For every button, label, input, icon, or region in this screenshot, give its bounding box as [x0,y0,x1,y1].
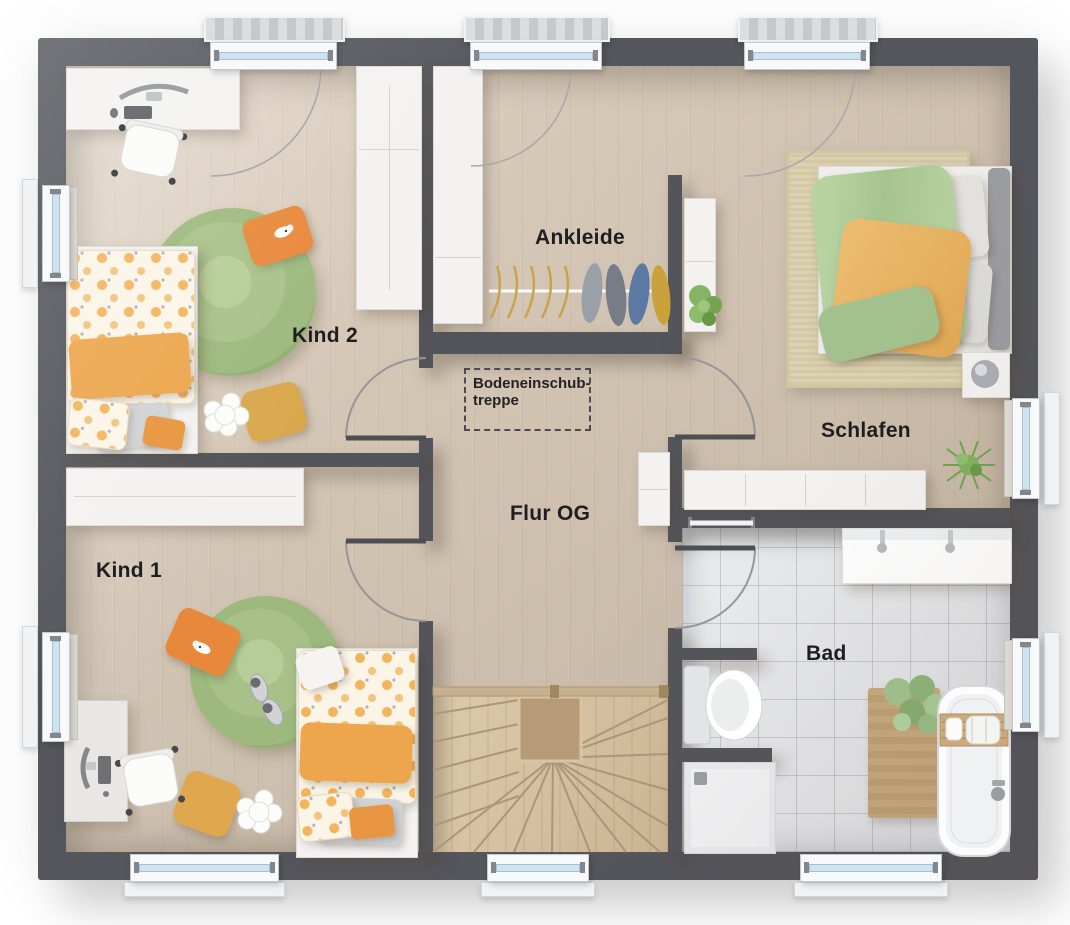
window-glass [1022,407,1030,490]
window-right-bad [1012,638,1040,732]
shelf-divider [686,261,714,262]
bed2-throw-orange [299,722,413,784]
sideboard-divider-3 [865,474,866,506]
window-sill [1044,392,1060,505]
floor-plan: Kind 2 Ankleide Schlafen Flur OG Kind 1 … [0,0,1070,925]
window-top-ankleide [470,42,602,70]
wall-center-mid [419,438,433,541]
sideboard-divider-2 [805,474,806,506]
pillow-orange-small-2 [348,804,395,840]
attic-stairs-note: Bodeneinschub- treppe [464,368,591,431]
window-bottom-kind1 [130,854,279,882]
room-label-kind2: Kind 2 [292,325,358,346]
shelf-cabinet [684,198,716,332]
window-top-schlafen [744,42,870,70]
window-left-kind2 [42,185,70,282]
window-sill [481,882,595,897]
room-label-bad: Bad [806,643,847,664]
window-right-schlafen [1012,398,1040,499]
bed-throw-orange [68,332,192,400]
staircase-floor [433,697,668,852]
room-label-kind1: Kind 1 [96,560,162,581]
window-left-kind1 [42,632,70,742]
closet-divider [435,257,480,258]
window-sill [794,882,948,897]
wall-ankleide-south [433,332,682,354]
window-glass [219,52,328,60]
room-label-schlafen: Schlafen [821,420,911,441]
sideboard [684,470,926,510]
nightstand [962,352,1010,398]
wardrobe-divider [389,86,390,289]
window-glass [809,864,933,872]
wall-kind1-kind2 [66,453,419,467]
pillow-dotted [66,397,131,451]
wall-ankleide-schlafen [668,175,682,352]
hall-cabinet [638,452,670,526]
window-glass [1022,647,1030,723]
wardrobe-shelf-line [359,149,419,150]
wall-schlafen-bad [682,508,1010,528]
window-glass [496,864,580,872]
desk [66,68,240,130]
attic-stairs-note-line2: treppe [473,392,589,409]
wardrobe-low-divider [74,496,296,497]
window-bottom-stairs [487,854,589,882]
window-sill [22,179,38,288]
closet [433,66,483,324]
window-glass [479,52,593,60]
hall-cabinet-divider [640,489,668,490]
window-glass [52,641,60,733]
window-sill [124,882,285,897]
wall-toilet-stub-upper [682,648,757,660]
headboard [988,168,1010,350]
window-bottom-bad [800,854,942,882]
window-sill [1044,632,1060,738]
wall-bad-west [668,628,682,852]
room-label-ankleide: Ankleide [535,227,625,248]
window-top-kind2 [210,42,337,70]
window-awning [204,16,345,42]
window-sill [22,626,38,748]
window-awning [738,16,878,42]
window-awning [464,16,610,42]
window-glass [52,194,60,273]
room-label-flur: Flur OG [510,503,590,524]
vanity-backsplash [843,529,1011,540]
bath-mat-wood [868,688,940,818]
vanity-double-sink [842,528,1012,584]
attic-stairs-note-line1: Bodeneinschub- [473,375,589,392]
wardrobe-low [66,468,304,526]
shower [684,762,776,854]
sideboard-divider-1 [745,474,746,506]
window-glass [753,52,861,60]
wall-toilet-stub-lower [682,748,772,762]
wall-kind1-east [419,621,433,852]
window-glass [139,864,270,872]
wall-flur-east [668,437,682,542]
pillow-dotted-2 [296,791,357,843]
wardrobe-tall [356,66,422,310]
